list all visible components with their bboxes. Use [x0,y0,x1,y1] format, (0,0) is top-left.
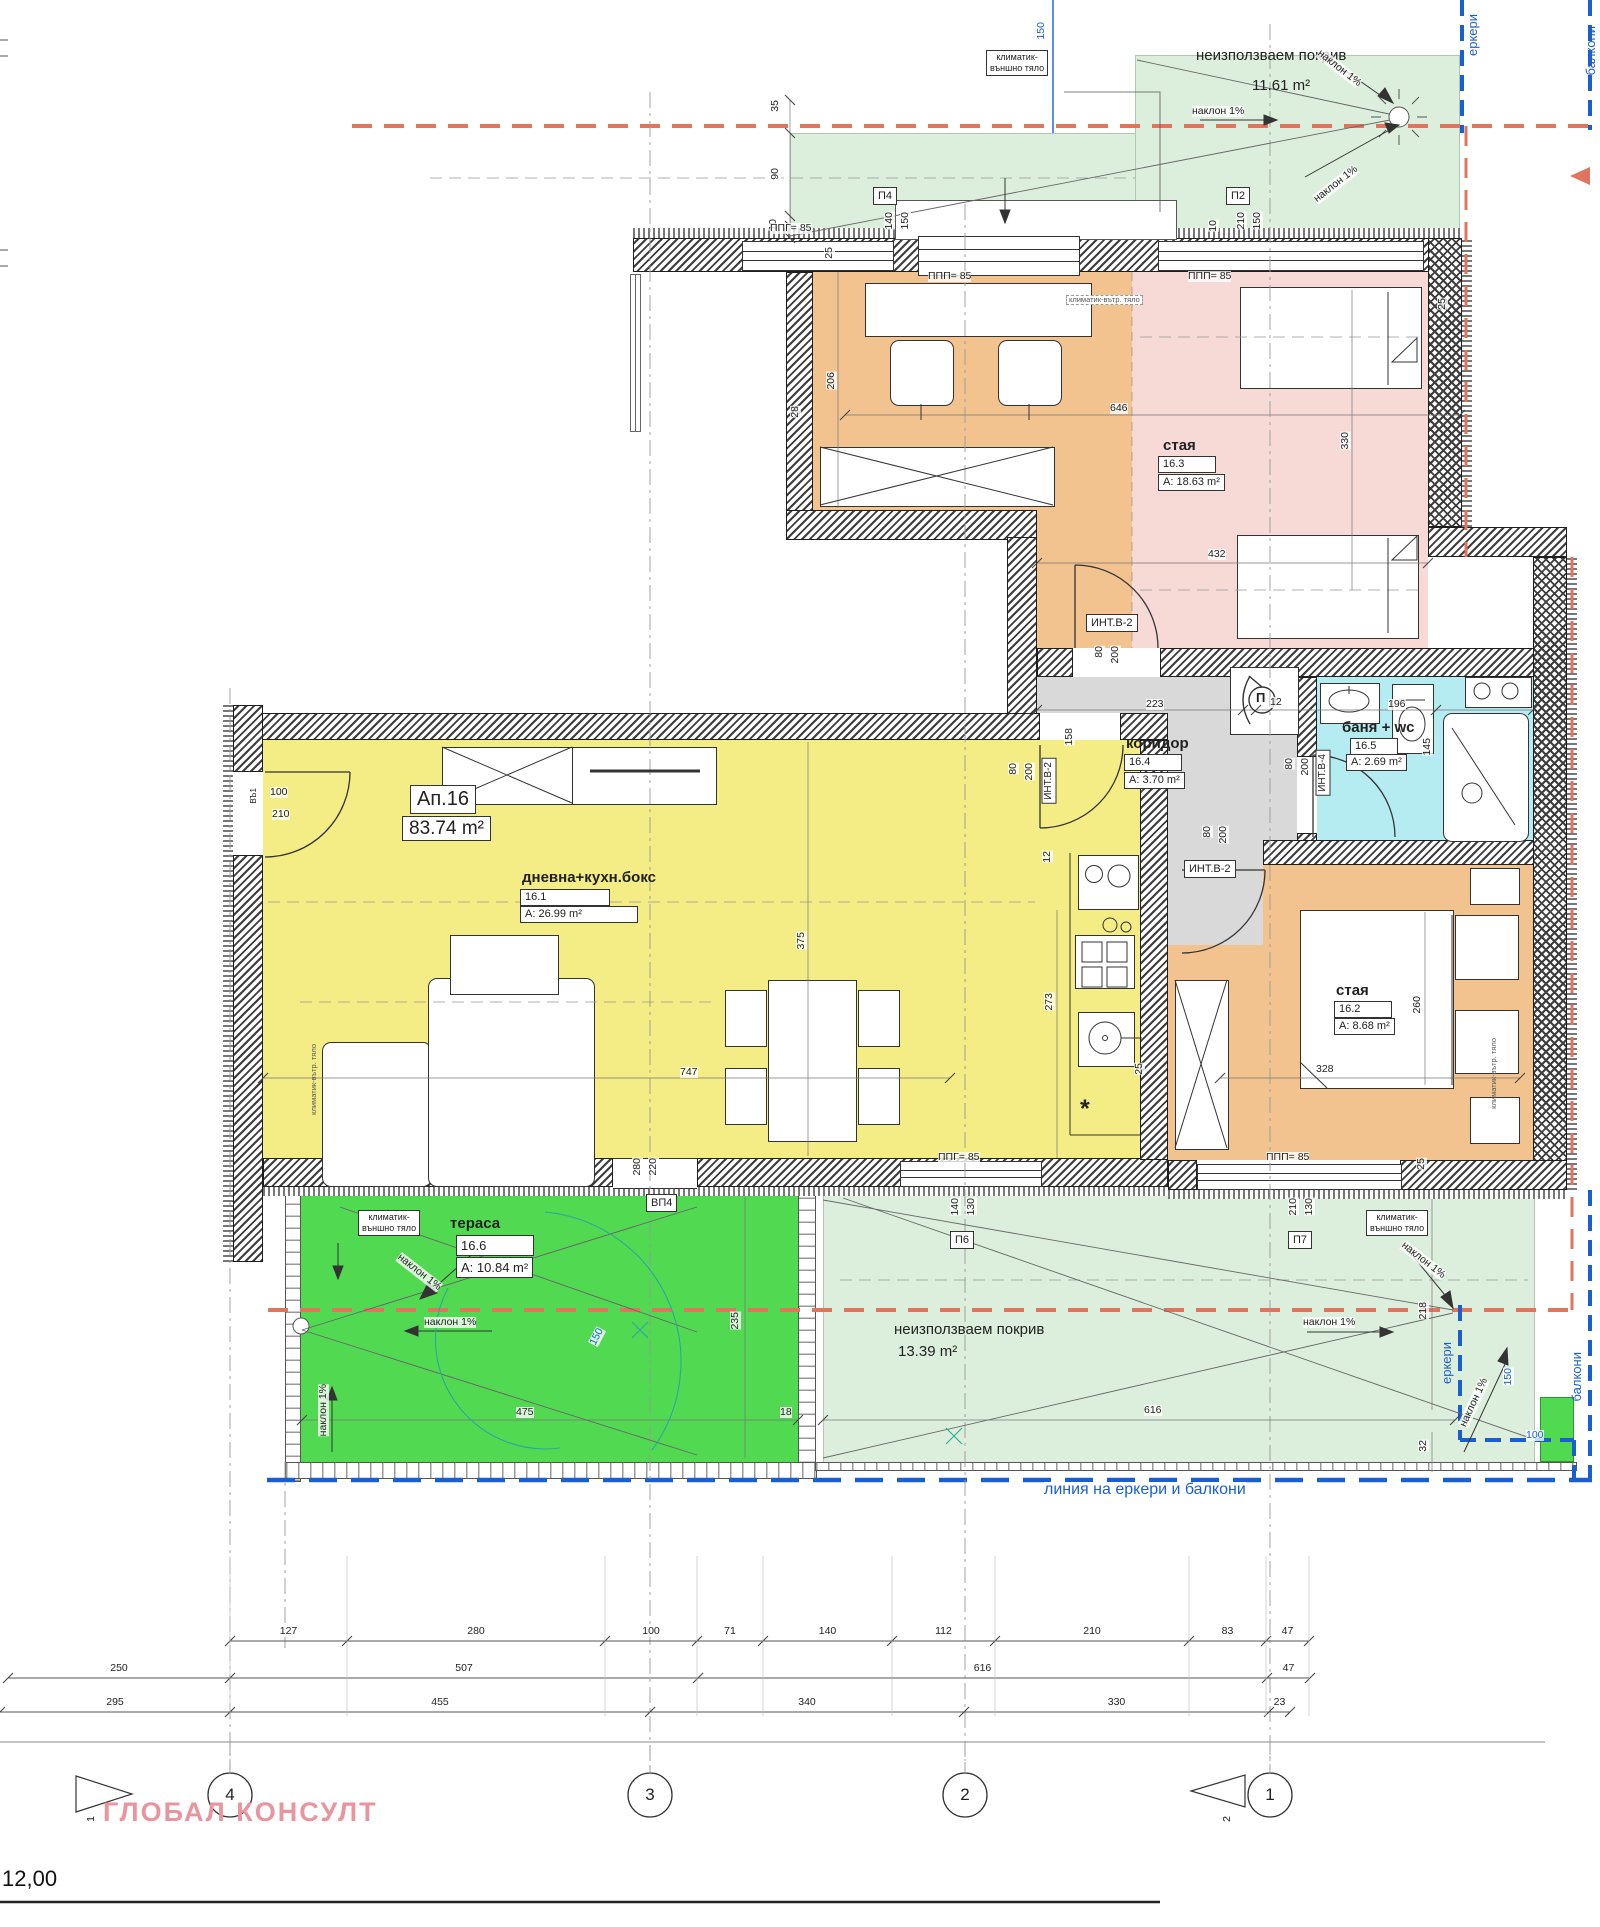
dim-432: 432 [1208,549,1226,560]
door-opening [1040,713,1120,740]
window [1158,241,1424,271]
chair [858,990,900,1047]
dim-row-upper-71: 71 [724,1626,736,1637]
door-entry-code: ВЪ1 [250,788,258,804]
sofa [428,978,595,1187]
room-165-area: A: 2.69 m² [1346,754,1407,771]
dim-row-upper-210: 210 [1083,1626,1101,1637]
dim-entry-100: 100 [270,787,288,798]
entry-door-opening [233,772,263,855]
dim-260: 260 [1412,996,1423,1014]
window [900,1161,1042,1187]
room-161-name: дневна+кухн.бокс [522,870,656,886]
dim-196: 196 [1388,699,1406,710]
roof-edge-arrow [1570,167,1590,185]
dim-door-b-80: 80 [1008,763,1019,775]
dim-p2-w: 210 [1236,212,1247,230]
window [1197,1164,1402,1190]
dim-row-middle-507: 507 [455,1663,473,1674]
watermark-logo: ГЛОБАЛ КОНСУЛТ [103,1797,378,1828]
tv-shelf [572,747,717,805]
win-code-p6: П6 [950,1231,974,1249]
ac-indoor-162: климатик-вътр. тяло [1490,1038,1498,1109]
win-code-p4: П4 [873,187,897,205]
dim-row-upper-140: 140 [819,1626,837,1637]
terrace-rail-right [798,1195,816,1464]
apartment-area: 83.74 m² [402,816,491,841]
room-166-name: тераса [450,1216,500,1232]
kitchen-stove [1078,855,1139,910]
chair [998,340,1062,406]
pillow [1455,1010,1519,1074]
roof-low-label: неизползваем покрив [894,1322,1044,1338]
dim-row-upper-100: 100 [642,1626,660,1637]
door-int-b2-b: ИНТ.В-2 [1042,758,1057,804]
slope-terrace-v: наклон 1% [318,1384,329,1436]
dim-646: 646 [1110,403,1128,414]
terrace-rail-bottom [285,1462,817,1479]
room-162-num: 16.2 [1334,1001,1392,1018]
dining-table [768,980,857,1142]
wall [1168,1160,1197,1190]
edge-marks [0,40,8,266]
kitchen-star: * [1080,1096,1090,1122]
dim-row-lower-340: 340 [798,1697,816,1708]
section-marker-2-label: 2 [1222,1816,1233,1822]
dim-206: 206 [826,372,837,390]
dim-35: 35 [770,100,781,112]
insulation [223,705,233,1262]
dim-vp4-220: 220 [648,1158,659,1176]
slope-terrace-h: наклон 1% [424,1317,476,1328]
chair [725,990,767,1047]
axis-number-4: 4 [225,1785,234,1805]
dim-25d: 25 [1416,1158,1427,1170]
dim-p2-h: 150 [1252,212,1263,230]
win-code-p7: П7 [1288,1231,1312,1249]
floor-plan: ГЛОБАЛ КОНСУЛТ 12,00 150климатик- външно… [0,0,1600,1927]
blue-line-note: линия на еркери и балкони [1044,1482,1246,1499]
room-162-name: стая [1336,983,1369,999]
balkoni-top: балкони [1584,26,1598,75]
wardrobe [820,447,1055,507]
dim-10b: 10 [1208,220,1219,232]
kitchen-sink [1078,1012,1135,1067]
dim-475: 475 [516,1407,534,1418]
generated-dimension-rows [0,1556,1315,1817]
room-163-area: A: 18.63 m² [1158,474,1225,491]
bed [1237,535,1419,639]
bathtub [1443,713,1529,842]
sill-ppg-bottom: ППГ= 85 [938,1152,980,1163]
win-code-p2: П2 [1226,187,1250,205]
window [742,241,894,271]
door-int-b2-a: ИНТ.В-2 [1086,614,1138,632]
kitchen-hob [1075,935,1135,989]
bed [1240,287,1422,389]
dim-window-150-top: 150 [1036,22,1047,40]
dim-p4-w: 140 [884,212,895,230]
dim-row-upper-83: 83 [1222,1626,1234,1637]
dim-door-b-200: 200 [1024,763,1035,781]
room-164-num: 16.4 [1124,754,1182,771]
dim-375: 375 [796,932,807,950]
dim-door-d-200: 200 [1218,826,1229,844]
door-int-b4: ИНТ.В-4 [1316,750,1331,796]
dim-p4-h: 150 [900,212,911,230]
dim-90: 90 [770,168,781,180]
dim-door-a-80: 80 [1094,646,1105,658]
balkoni-bottom: балкони [1570,1352,1584,1401]
slope-roof-h: наклон 1% [1303,1317,1355,1328]
sill-ppp-1: ППП= 85 [928,271,971,282]
room-166-area: A: 10.84 m² [456,1257,533,1278]
bath-sink [1320,683,1380,724]
apartment-id: Ап.16 [410,785,476,814]
dim-223: 223 [1146,699,1164,710]
coffee-table [450,935,559,995]
wall [1007,537,1037,740]
chair [890,340,954,406]
sill-ppp-3: ППП= 85 [1266,1152,1309,1163]
dim-32: 32 [1418,1440,1429,1452]
dim-273: 273 [1044,993,1055,1011]
erker-top: еркери [1466,14,1480,56]
dim-328: 328 [1316,1064,1334,1075]
erker-bottom: еркери [1440,1342,1454,1384]
pillow [1455,915,1519,980]
sill-ppp-2: ППП= 85 [1188,271,1231,282]
wall [1037,648,1073,677]
appliance [1465,677,1532,708]
dim-door-c-200: 200 [1300,758,1311,776]
dim-330: 330 [1340,432,1351,450]
sofa [322,1042,432,1187]
room-163-name: стая [1163,438,1196,454]
room-164-name: коридор [1126,736,1189,752]
ac-outdoor-roof: климатик- външно тяло [1366,1210,1428,1236]
dim-p7-h: 130 [1304,1198,1315,1216]
dim-p6-w: 140 [950,1198,961,1216]
dim-door-a-200: 200 [1110,646,1121,664]
room-161-num: 16.1 [520,889,610,906]
axis-number-2: 2 [960,1785,969,1805]
insulation [263,1187,1168,1196]
dim-218: 218 [1418,1302,1429,1320]
dim-100-blue: 100 [1526,1430,1544,1441]
dim-row-middle-250: 250 [110,1663,128,1674]
wall [1428,527,1567,557]
wall [1297,677,1317,757]
desk [865,283,1092,337]
dim-row-upper-47: 47 [1282,1626,1294,1637]
room-166-num: 16.6 [456,1235,534,1256]
roof-low-area: 13.39 m² [898,1344,957,1360]
door-int-b2-c: ИНТ.В-2 [1184,860,1236,878]
dim-150-blue-right: 150 [1503,1368,1514,1386]
dim-25b: 25 [1437,298,1448,310]
axis-number-3: 3 [645,1785,654,1805]
dim-p7-w: 210 [1288,1198,1299,1216]
room-161-area: A: 26.99 m² [520,906,638,923]
wall [1140,740,1168,1160]
wall [1428,238,1462,527]
dim-row-lower-455: 455 [431,1697,449,1708]
dim-row-middle-616: 616 [974,1663,992,1674]
dim-p6-h: 130 [966,1198,977,1216]
roof-top-area: 11.61 m² [1252,78,1310,94]
chair [725,1068,767,1125]
wall [1160,648,1567,677]
dim-row-lower-23: 23 [1274,1697,1286,1708]
room-165-name: баня + wc [1342,720,1415,736]
door-vp4: ВП4 [646,1194,677,1212]
chair [858,1068,900,1125]
roof-low-edge [815,1462,1577,1471]
dim-25a: 25 [824,247,835,259]
dim-entry-210: 210 [272,809,290,820]
dim-door-c-80: 80 [1284,758,1295,770]
dim-12a: 12 [1270,697,1282,708]
dim-row-lower-295: 295 [106,1697,124,1708]
dim-235: 235 [730,1312,741,1330]
room-165-num: 16.5 [1350,738,1398,755]
dim-row-upper-112: 112 [935,1626,952,1637]
dim-vp4-280: 280 [632,1158,643,1176]
dim-row-upper-280: 280 [467,1626,485,1637]
sill-ppg-top: ППГ= 85 [770,223,812,234]
window-bay-outline [895,200,1177,240]
insulation [1168,1190,1567,1199]
roof-low-corner-fill [1540,1397,1574,1462]
dim-row-lower-330: 330 [1108,1697,1126,1708]
dim-row-middle-47: 47 [1283,1663,1295,1674]
nightstand [1470,868,1520,905]
ac-indoor-161: климатик-вътр. тяло [310,1044,318,1115]
room-162-area: A: 8.68 m² [1334,1018,1395,1035]
dim-18: 18 [780,1407,792,1418]
wall [233,705,263,772]
wall [1263,840,1567,865]
wall [233,855,263,1262]
wall [786,510,1037,540]
dim-747: 747 [680,1067,698,1078]
section-marker-1-label: 1 [86,1816,97,1822]
room-163-num: 16.3 [1158,456,1216,473]
wall [233,713,1040,740]
insulation [1567,557,1577,1190]
ac-indoor-163: климатик-вътр. тяло [1066,295,1143,305]
dim-row-upper-127: 127 [280,1626,298,1637]
ac-outdoor-terrace: климатик- външно тяло [358,1210,420,1236]
dim-12b: 12 [1042,851,1053,863]
room-164-area: A: 3.70 m² [1124,772,1185,789]
ac-outdoor-top: климатик- външно тяло [986,50,1048,76]
terrace-rail-left [285,1195,301,1482]
axis-number-1: 1 [1265,1785,1274,1805]
insulation [1462,238,1472,527]
wardrobe [1175,980,1229,1150]
dim-616: 616 [1144,1405,1162,1416]
level-mark: 12,00 [2,1866,57,1892]
dim-25c: 25 [1134,1063,1145,1075]
dim-158: 158 [1064,728,1075,746]
slope-top: наклон 1% [1192,106,1244,117]
dim-door-d-80: 80 [1202,826,1213,838]
dim-28: 28 [790,406,801,418]
window [630,274,641,432]
dim-145: 145 [1422,738,1433,756]
wall [1533,557,1567,1190]
shaft-p-symbol: П [1256,691,1265,705]
